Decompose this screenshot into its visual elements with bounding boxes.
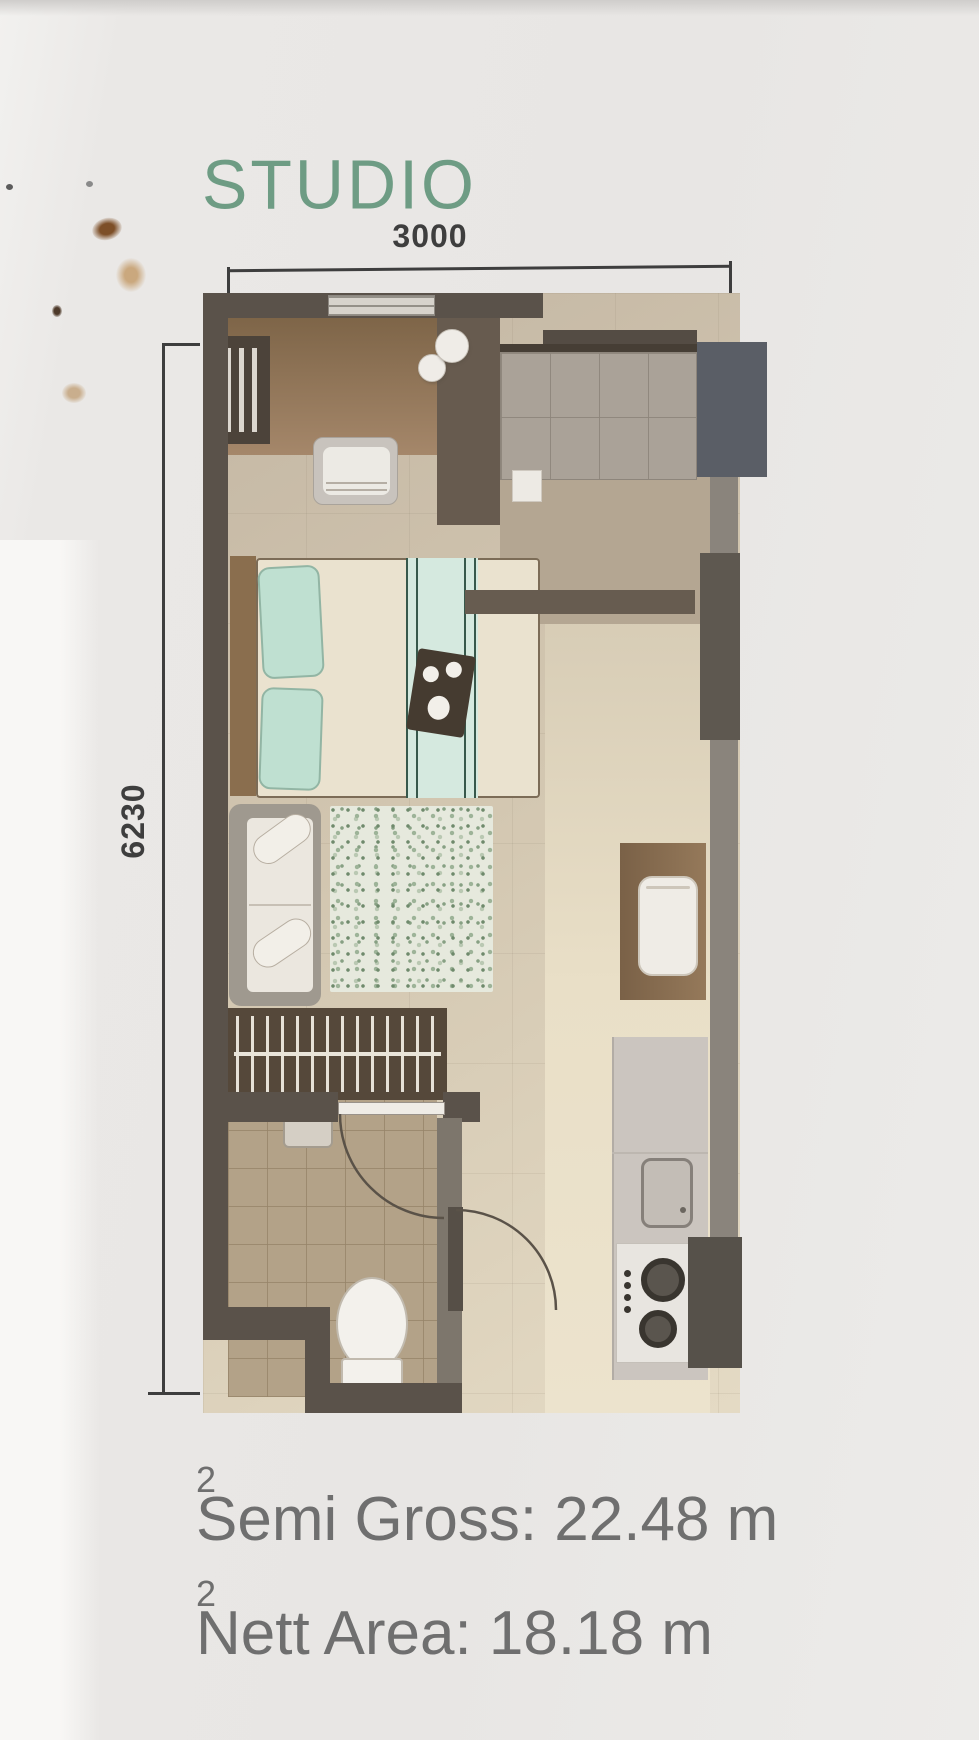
semi-gross-area-text: Semi Gross: 22.48 m2 — [196, 1484, 216, 1555]
squared-sup: 2 — [196, 1459, 216, 1500]
nett-text: Nett Area: 18.18 m — [196, 1598, 713, 1669]
entry-door-arc — [456, 1210, 556, 1310]
bathroom-door-arc — [340, 1114, 444, 1218]
squared-sup: 2 — [196, 1573, 216, 1614]
door-swing-arcs — [0, 0, 979, 1740]
floor-plan-photo: STUDIO 3000 6230 — [0, 0, 979, 1740]
semi-gross-text: Semi Gross: 22.48 m — [196, 1484, 778, 1555]
nett-area-text: Nett Area: 18.18 m2 — [196, 1598, 216, 1669]
